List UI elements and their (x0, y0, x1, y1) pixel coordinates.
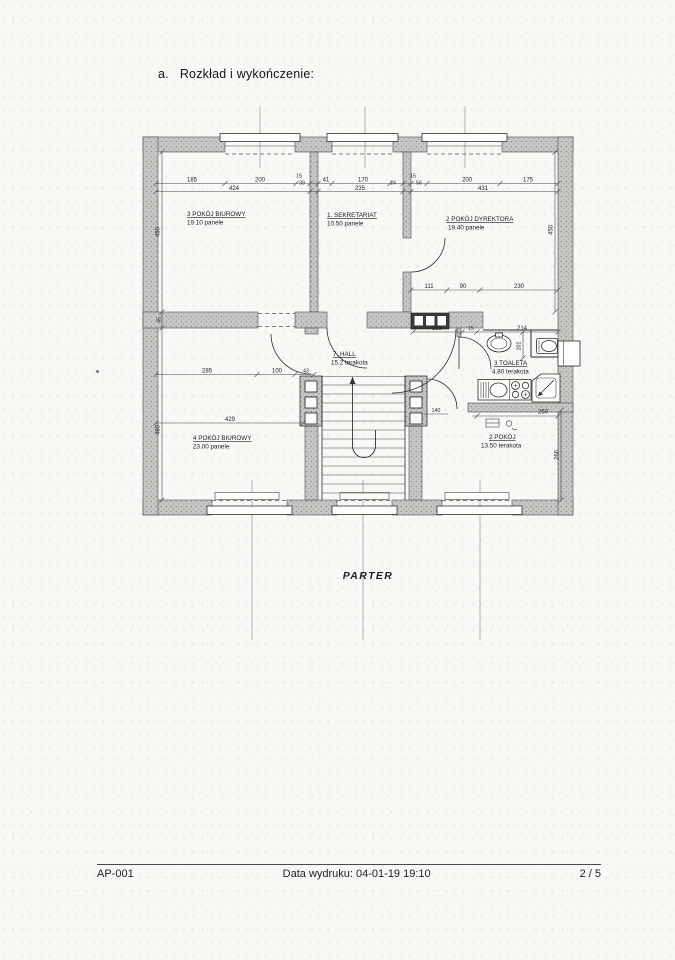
window (422, 134, 507, 155)
dim-label: 56 (416, 181, 422, 187)
dim-label: 480 (156, 424, 162, 435)
page-footer: AP-001 Data wydruku: 04-01-19 19:10 2 / … (97, 864, 601, 880)
door-arc (411, 238, 445, 272)
dim-label: 235 (355, 186, 366, 192)
svg-text:10.50 panele: 10.50 panele (327, 221, 364, 228)
dim-label: 250 (538, 410, 549, 416)
dim-label: 140 (432, 408, 441, 414)
shower-icon (532, 374, 560, 402)
dim-label: 111 (424, 284, 434, 290)
furniture-sketch (486, 419, 517, 430)
door-arc (459, 337, 491, 369)
plan-title: PARTER (318, 570, 418, 582)
svg-text:2 POKÓJ DYREKTORA: 2 POKÓJ DYREKTORA (446, 214, 514, 223)
toilet-icon (537, 339, 558, 354)
dim-label: 185 (432, 326, 443, 332)
staircase (322, 376, 405, 500)
stair-piers (300, 376, 427, 426)
dim-label: 450 (549, 224, 555, 235)
room-labels: 3 POKÓJ BIUROWY 19.10 panele 1. SEKRETAR… (187, 209, 529, 451)
window (207, 493, 292, 515)
stair-walkline (353, 377, 376, 458)
dim-label: 24 (390, 181, 396, 187)
footer-doc-code: AP-001 (97, 868, 134, 880)
window (332, 493, 397, 515)
dim-label: 15 (410, 174, 416, 180)
dim-label: 170 (358, 178, 369, 184)
room-label-sekretariat: 1. SEKRETARIAT 10.50 panele (327, 212, 377, 228)
dim-label: 45 (157, 317, 163, 323)
dim-label: 431 (478, 186, 489, 192)
axis-centerlines (252, 106, 480, 640)
footer-print-date: Data wydruku: 04-01-19 19:10 (283, 868, 431, 880)
svg-text:7. HALL: 7. HALL (333, 351, 356, 358)
svg-text:19.40 panele: 19.40 panele (448, 225, 485, 232)
dim-label: 200 (255, 178, 266, 184)
svg-text:3 POKÓJ BIUROWY: 3 POKÓJ BIUROWY (187, 209, 246, 218)
washbasin-icon (487, 333, 511, 352)
stair-direction-arrow (350, 377, 356, 384)
dim-label: 230 (514, 284, 525, 290)
dim-label: 285 (202, 369, 213, 375)
kitchenette-icon (478, 380, 531, 401)
dim-label: 266 (555, 449, 561, 460)
window (327, 134, 398, 155)
floor-plan-drawing: 185 200 15 39 41 170 24 15 56 200 175 42… (0, 0, 675, 960)
dim-label: 214 (517, 326, 528, 332)
dim-label: 450 (156, 226, 162, 237)
svg-text:15.2 terakota: 15.2 terakota (331, 360, 368, 367)
footer-page-number: 2 / 5 (580, 868, 601, 880)
room-label-dyrektor: 2 POKÓJ DYREKTORA 19.40 panele (446, 214, 514, 232)
svg-text:19.10 panele: 19.10 panele (187, 220, 224, 227)
svg-text:4.80 terakota: 4.80 terakota (492, 369, 529, 376)
room-label-pokoj2: 2 POKÓJ 13.50 terakota (481, 432, 522, 450)
room-label-toaleta: 3 TOALETA 4.80 terakota (492, 360, 529, 376)
dim-label: 41 (323, 178, 330, 184)
svg-text:2 POKÓJ: 2 POKÓJ (489, 432, 516, 441)
dim-label: 202 (517, 342, 523, 351)
dim-label: 185 (187, 178, 198, 184)
door-arc (427, 379, 457, 409)
dim-label: 15 (296, 174, 302, 180)
dim-label: 90 (460, 284, 467, 290)
dashed-opening (258, 314, 295, 327)
dim-label: 43 (303, 369, 309, 375)
room-label-office4: 4 POKÓJ BIUROWY 23.00 panele (193, 433, 252, 451)
svg-text:1. SEKRETARIAT: 1. SEKRETARIAT (327, 212, 377, 219)
svg-text:13.50 terakota: 13.50 terakota (481, 443, 522, 450)
window (437, 493, 522, 515)
svg-text:3 TOALETA: 3 TOALETA (494, 360, 528, 367)
dim-label: 175 (523, 178, 534, 184)
svg-text:4 POKÓJ BIUROWY: 4 POKÓJ BIUROWY (193, 433, 252, 442)
ventilation-shaft (411, 313, 449, 329)
room-label-office3: 3 POKÓJ BIUROWY 19.10 panele (187, 209, 246, 227)
dim-label: 39 (299, 181, 305, 187)
boiler-icon (558, 341, 580, 366)
dim-label: 424 (229, 186, 240, 192)
dim-label: 200 (462, 178, 473, 184)
dim-label: 15 (468, 326, 474, 332)
svg-text:23.00 panele: 23.00 panele (193, 444, 230, 451)
room-label-hall: 7. HALL 15.2 terakota (331, 351, 368, 367)
dim-label: 429 (225, 417, 236, 423)
dim-label: 100 (272, 369, 283, 375)
